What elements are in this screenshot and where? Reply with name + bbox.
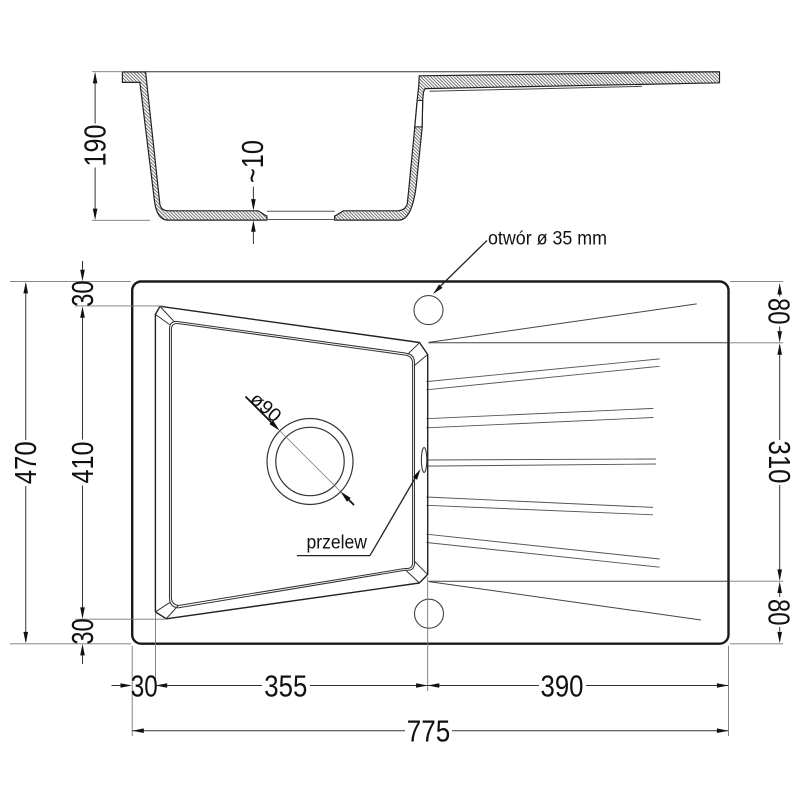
svg-text:30: 30 xyxy=(65,281,100,307)
svg-text:30: 30 xyxy=(65,619,100,645)
svg-text:otwór ø 35 mm: otwór ø 35 mm xyxy=(488,229,607,250)
svg-text:80: 80 xyxy=(762,599,797,626)
svg-text:310: 310 xyxy=(762,441,797,484)
svg-text:470: 470 xyxy=(8,441,43,484)
svg-text:~10: ~10 xyxy=(235,140,270,183)
svg-text:przelew: przelew xyxy=(307,533,368,554)
svg-text:355: 355 xyxy=(264,669,307,704)
svg-text:390: 390 xyxy=(541,669,584,704)
svg-text:30: 30 xyxy=(131,668,158,703)
svg-text:775: 775 xyxy=(407,714,451,749)
svg-text:190: 190 xyxy=(78,125,113,167)
svg-text:80: 80 xyxy=(762,298,797,325)
svg-text:410: 410 xyxy=(65,442,100,484)
